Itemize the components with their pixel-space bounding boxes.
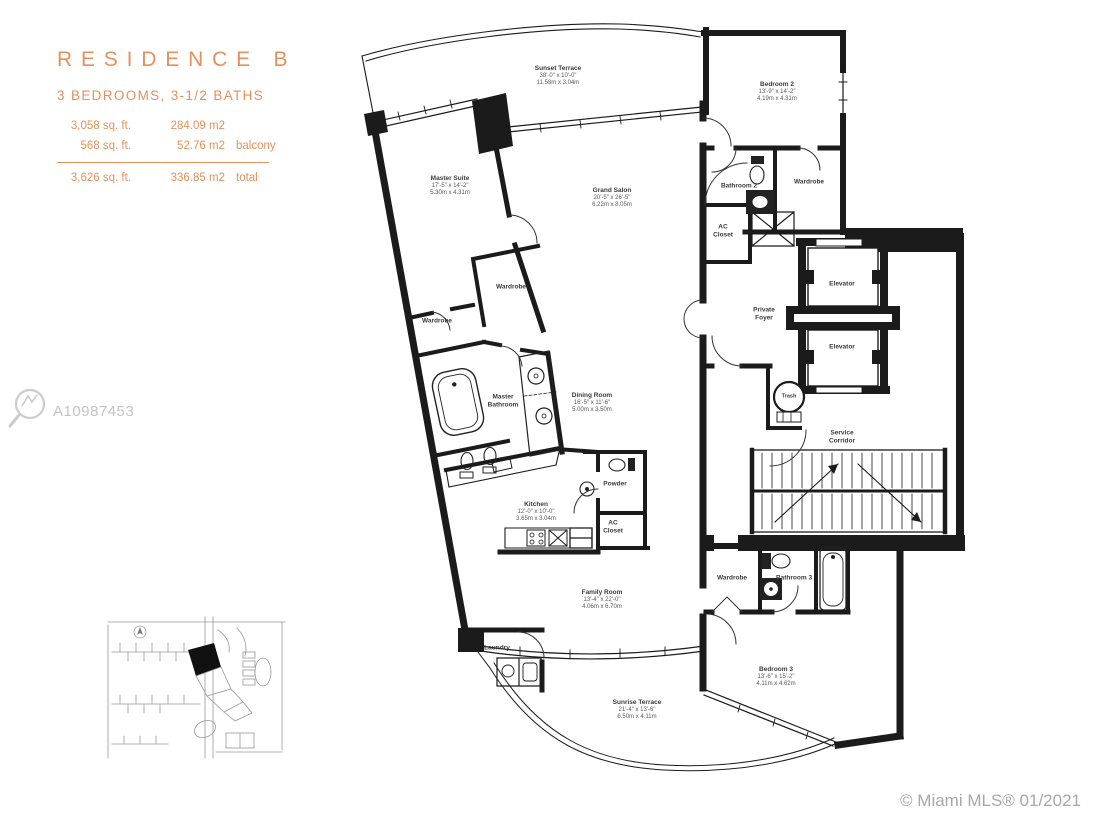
title-block: RESIDENCE B 3 BEDROOMS, 3-1/2 BATHS 3,05…	[57, 48, 357, 188]
area-row-total: 3,626 sq. ft. 336.85 m2 total	[57, 168, 357, 188]
highlighted-unit	[188, 643, 221, 676]
compass-icon	[134, 626, 146, 638]
area-row-balcony: 568 sq. ft. 52.76 m2 balcony	[57, 136, 357, 156]
mls-number: A10987453	[53, 403, 134, 420]
magnifier-logo-icon	[6, 386, 50, 432]
area-divider	[57, 162, 269, 163]
floorplan-page: RESIDENCE B 3 BEDROOMS, 3-1/2 BATHS 3,05…	[0, 0, 1093, 818]
area-table: 3,058 sq. ft. 284.09 m2 568 sq. ft. 52.7…	[57, 116, 357, 188]
master-bathtub	[430, 366, 486, 438]
site-map	[108, 617, 285, 758]
residence-title: RESIDENCE B	[57, 48, 357, 72]
residence-subtitle: 3 BEDROOMS, 3-1/2 BATHS	[57, 88, 357, 103]
mls-watermark: A10987453	[6, 386, 134, 432]
plan-walls	[362, 24, 965, 771]
area-row-interior: 3,058 sq. ft. 284.09 m2	[57, 116, 357, 136]
mls-credit: © Miami MLS® 01/2021	[900, 791, 1081, 811]
